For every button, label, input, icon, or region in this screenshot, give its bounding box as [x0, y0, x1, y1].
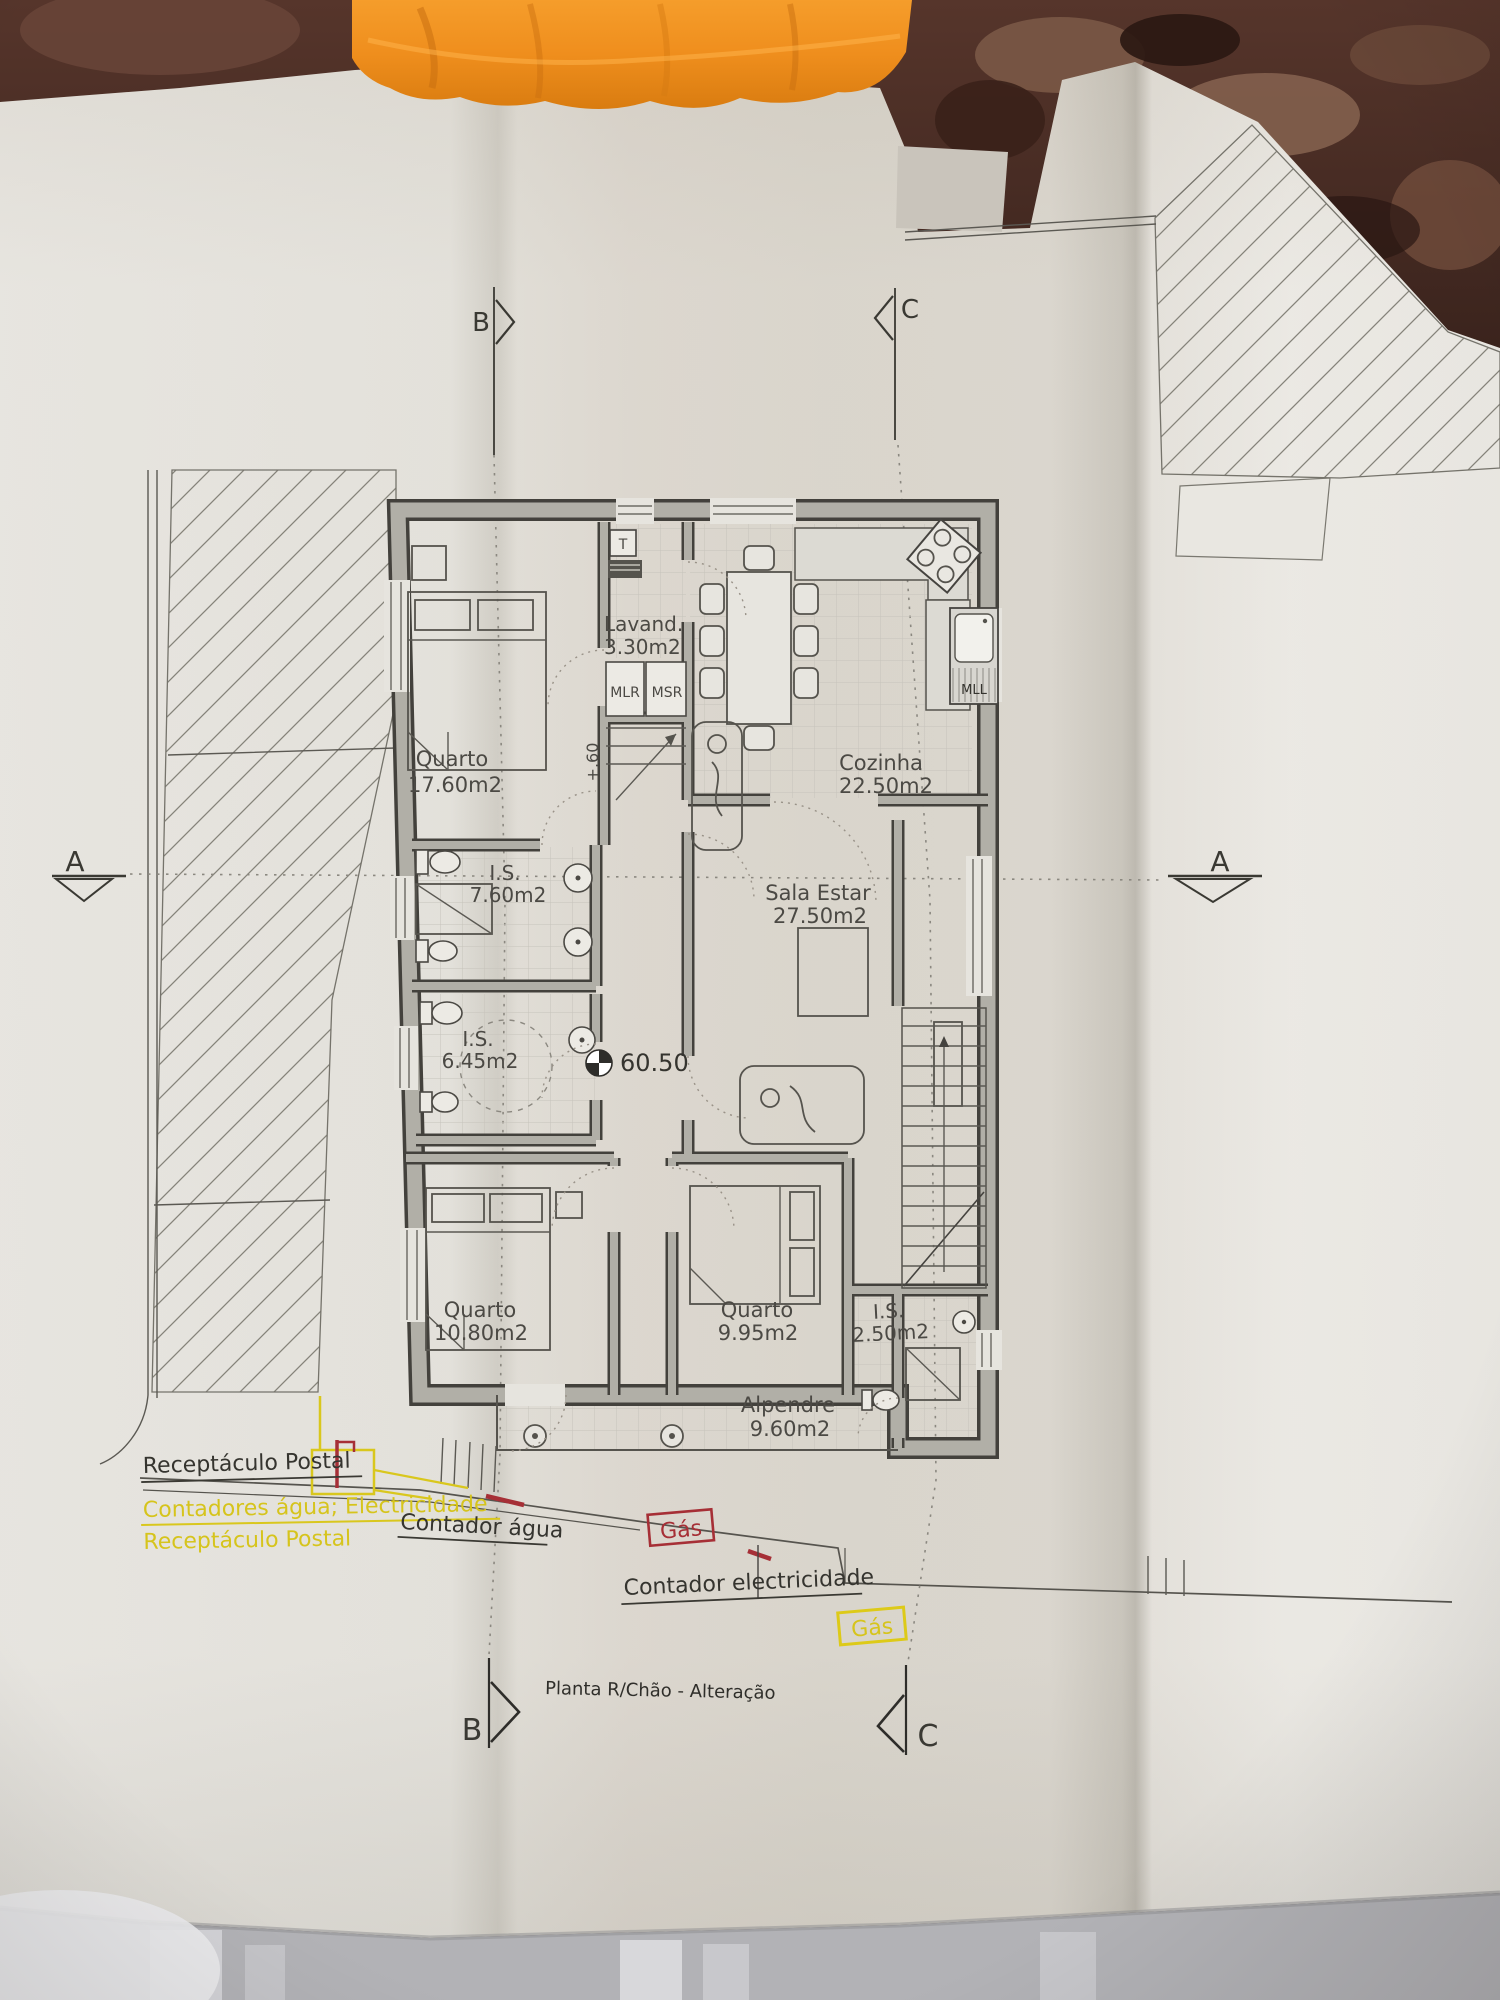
- photo-vignette: [0, 0, 1500, 2000]
- scene-svg: Quarto 17.60m2 Lavand. 3.30m2 Cozinha 22…: [0, 0, 1500, 2000]
- photo-of-floor-plan: Quarto 17.60m2 Lavand. 3.30m2 Cozinha 22…: [0, 0, 1500, 2000]
